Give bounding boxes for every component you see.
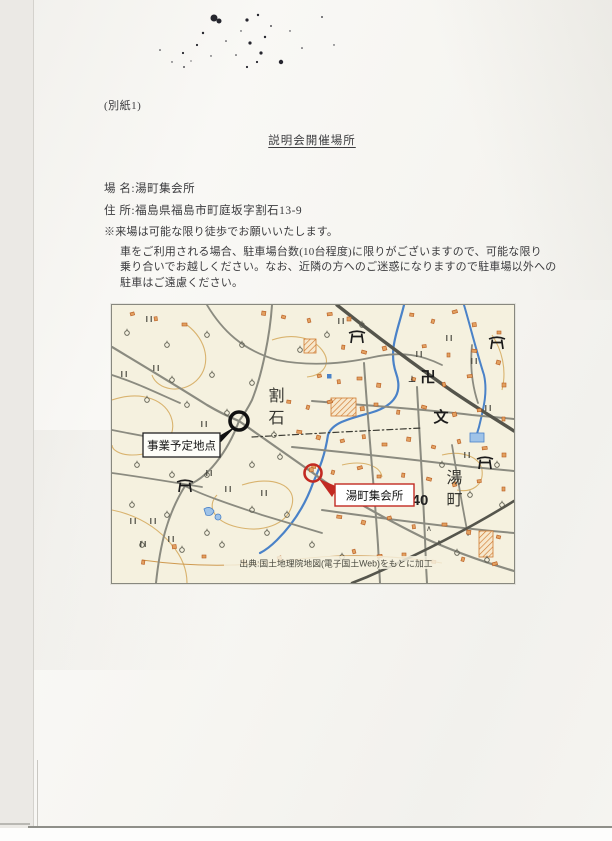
map-building [461, 557, 465, 562]
fruit-tree-mark [298, 348, 303, 353]
map-building [431, 445, 436, 449]
ink-speckle [240, 30, 241, 31]
grave-icon: ⊥ [408, 374, 416, 384]
map-building [502, 487, 505, 491]
fruit-tree-mark [468, 493, 473, 498]
pond-small [204, 507, 221, 520]
map-building [477, 479, 481, 483]
map-building [357, 377, 362, 380]
fruit-tree-mark [130, 503, 135, 508]
fruit-tree-mark [272, 433, 277, 438]
ink-speckle [225, 40, 227, 42]
ink-speckle [248, 41, 251, 44]
callout-project-site-label: 事業予定地点 [147, 439, 216, 453]
map-building [421, 405, 427, 409]
map-building [502, 417, 505, 421]
map-building [360, 406, 365, 411]
map-building [172, 544, 177, 549]
map-building [361, 350, 367, 354]
map-building [431, 319, 435, 324]
ink-speckle [256, 61, 258, 63]
map-building [327, 312, 332, 316]
paper-left-edge [0, 0, 34, 841]
map-building [337, 380, 341, 384]
fruit-tree-mark [500, 503, 505, 508]
fruit-tree-mark [325, 333, 330, 338]
ink-speckle [246, 66, 248, 68]
map-building [154, 317, 158, 321]
map-building [297, 430, 302, 434]
fruit-tree-mark [165, 513, 170, 518]
ink-speckle [235, 54, 237, 56]
ink-speckle [182, 52, 184, 54]
torii-icon [177, 480, 193, 492]
map-building [331, 470, 335, 475]
map-building [307, 318, 311, 323]
map-building [347, 317, 351, 321]
page-title: 説明会開催場所 [140, 132, 484, 148]
map-building [316, 435, 321, 440]
water-facility-icon [327, 374, 332, 379]
fruit-tree-mark [250, 381, 255, 386]
map-building [340, 439, 345, 443]
ink-speckles [0, 0, 612, 110]
ink-speckle [211, 15, 218, 22]
note-line: 車をご利用される場合、駐車場台数(10台程度)に限りがございますので、可能な限り [104, 245, 566, 261]
map-canvas: 卍 ⊥ 文 ∧∧ 割石 湯町 40 事業予定地点 湯町集会 [112, 305, 514, 583]
ink-speckle [264, 36, 266, 38]
fruit-tree-mark [265, 531, 270, 536]
svg-text:∧: ∧ [436, 538, 442, 547]
map-building [387, 516, 392, 520]
ink-speckle [259, 51, 262, 54]
scanned-document-page: (別紙1) 説明会開催場所 場 名:湯町集会所 住 所:福島県福島市町庭坂字割石… [0, 0, 612, 841]
map-building [410, 313, 414, 317]
map-building [202, 555, 206, 558]
map-building [477, 408, 481, 412]
ink-speckle [321, 16, 323, 18]
map-building [412, 525, 416, 529]
map-building [130, 312, 135, 316]
ink-speckle [210, 55, 211, 56]
fruit-tree-mark [220, 543, 225, 548]
map-building [261, 311, 266, 316]
map-building [452, 412, 457, 417]
map-building [357, 466, 363, 470]
map-building [376, 383, 381, 388]
ink-speckle [245, 18, 248, 21]
fruit-tree-mark [145, 398, 150, 403]
paper-crease [37, 760, 38, 828]
map-building [182, 323, 187, 326]
torii-icon [489, 337, 505, 349]
map-building [422, 344, 426, 348]
visitor-note: ※来場は可能な限り徒歩でお願いいたします。 車をご利用される場合、駐車場台数(1… [104, 225, 566, 291]
ink-speckle [190, 60, 191, 61]
map-source-caption: 出典:国土地理院地図(電子国土Web)をもとに加工 [239, 558, 432, 569]
map-building [466, 530, 471, 535]
fruit-tree-mark [278, 455, 283, 460]
map-building [442, 382, 446, 387]
ink-speckle [333, 44, 334, 45]
torii-icon [349, 331, 365, 343]
temple-icon: 卍 [420, 369, 435, 386]
note-line: 乗り合いでお越しください。なお、近隣の方へのご迷惑になりますので駐車場以外への [104, 260, 566, 276]
callout-project-site: 事業予定地点 [143, 426, 236, 457]
map-building [406, 437, 411, 442]
map-building [361, 520, 366, 525]
map-building [309, 467, 314, 472]
map-building [337, 515, 342, 519]
map-building [426, 477, 432, 481]
map-building [472, 322, 477, 327]
location-map: 卍 ⊥ 文 ∧∧ 割石 湯町 40 事業予定地点 湯町集会 [111, 304, 515, 584]
school-icon: 文 [433, 408, 449, 426]
ink-speckle [159, 49, 161, 51]
address-line: 住 所:福島県福島市町庭坂字割石13-9 [104, 202, 302, 218]
map-building [452, 310, 458, 314]
map-building [317, 374, 322, 378]
place-name-yumachi: 湯町 [444, 469, 463, 513]
map-building [482, 446, 487, 450]
fruit-tree-mark [210, 373, 215, 378]
ink-speckle [270, 25, 272, 27]
fruit-tree-mark [170, 473, 175, 478]
fruit-tree-mark [185, 403, 190, 408]
fruit-tree-mark [180, 548, 185, 553]
map-building [401, 473, 405, 477]
map-building [287, 400, 291, 404]
note-line: ※来場は可能な限り徒歩でお願いいたします。 [104, 225, 566, 241]
map-building [502, 453, 506, 457]
attachment-label: (別紙1) [104, 97, 141, 113]
map-building [281, 315, 286, 319]
ink-speckle [301, 47, 303, 49]
map-building [467, 374, 472, 378]
callout-meeting-hall: 湯町集会所 [319, 479, 414, 506]
fruit-tree-mark [125, 331, 130, 336]
fruit-tree-mark [165, 343, 170, 348]
venue-line: 場 名:湯町集会所 [104, 180, 195, 196]
map-building [447, 353, 450, 357]
fruit-tree-mark [495, 463, 500, 468]
ink-speckle [202, 32, 204, 34]
quarry-marks: ∧∧ [426, 524, 442, 547]
paper-bottom-edge [0, 823, 30, 825]
map-building [377, 475, 381, 478]
scanner-background [0, 828, 612, 841]
map-building [396, 410, 400, 414]
ink-speckle [183, 66, 185, 68]
map-building [496, 535, 501, 539]
fruit-tree-mark [205, 531, 210, 536]
map-building [374, 403, 378, 406]
river-lines [260, 305, 485, 553]
ink-speckle [279, 60, 283, 64]
svg-text:∧: ∧ [426, 524, 432, 533]
map-building [442, 523, 447, 526]
ink-speckle [217, 19, 222, 24]
ink-speckle [289, 30, 290, 31]
ink-speckle [171, 61, 172, 62]
map-building [457, 439, 461, 444]
map-building [472, 349, 477, 353]
fruit-tree-mark [170, 378, 175, 383]
fruit-tree-mark [250, 463, 255, 468]
map-building [141, 560, 145, 564]
note-line: 駐車はご遠慮ください。 [104, 276, 566, 292]
pond [470, 433, 484, 442]
map-building [496, 360, 501, 365]
fruit-tree-mark [135, 463, 140, 468]
map-building [362, 435, 366, 439]
map-building [382, 346, 387, 351]
map-building [352, 549, 356, 554]
map-building [502, 383, 506, 387]
place-name-warishi: 割石 [266, 387, 285, 431]
fruit-tree-mark [310, 543, 315, 548]
map-building [497, 331, 501, 334]
fruit-tree-mark [205, 333, 210, 338]
ink-speckle [196, 44, 198, 46]
callout-meeting-hall-label: 湯町集会所 [346, 489, 404, 503]
ink-speckle [257, 14, 259, 16]
map-building [306, 405, 310, 410]
map-building [382, 443, 387, 446]
map-building [341, 345, 345, 349]
